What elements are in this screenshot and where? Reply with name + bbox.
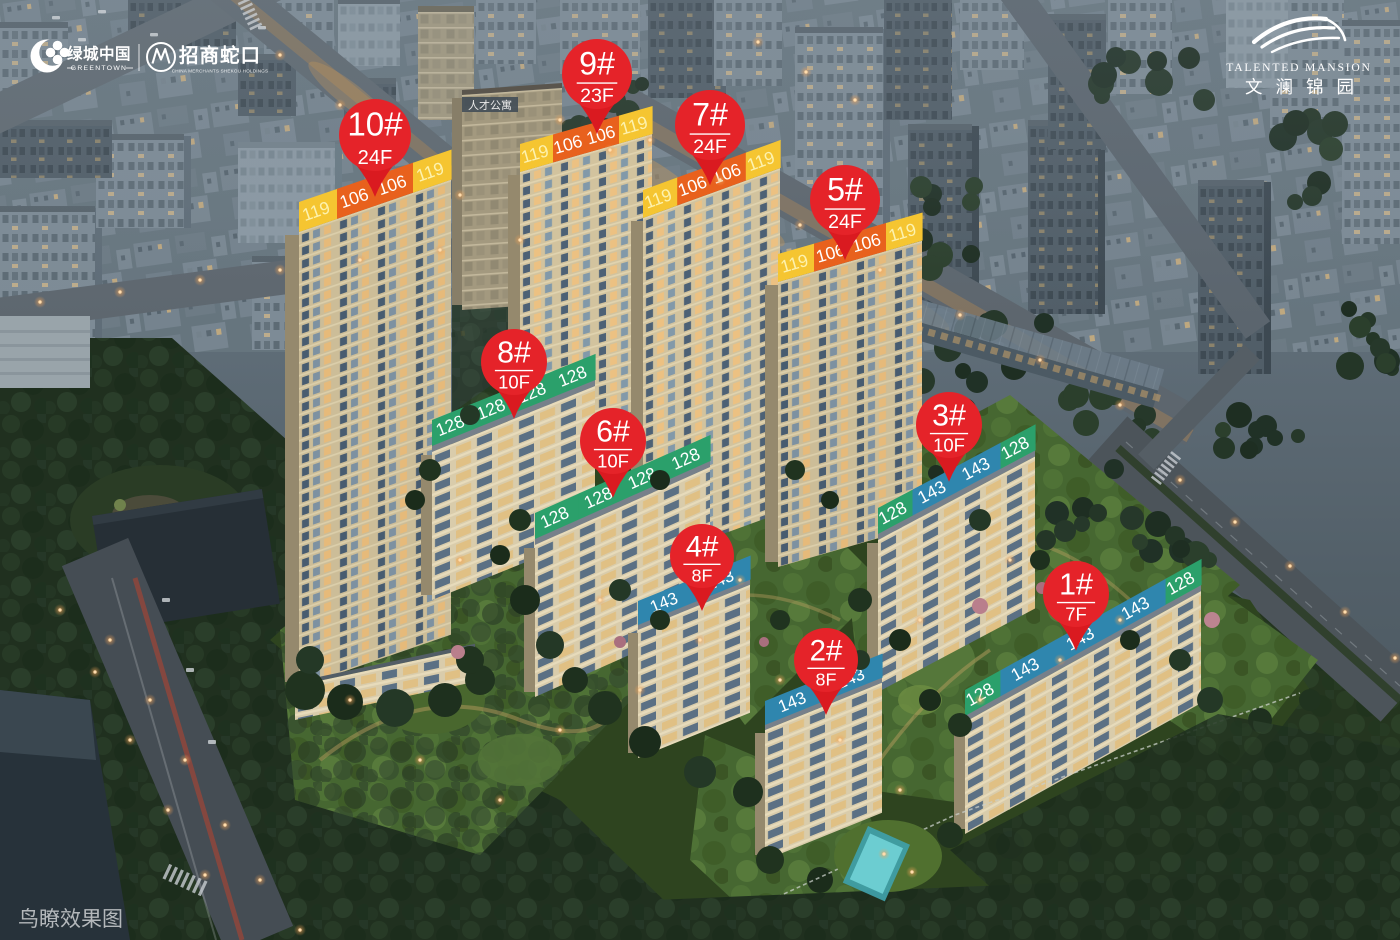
svg-text:4#: 4# xyxy=(686,531,719,564)
svg-text:10F: 10F xyxy=(498,371,530,392)
svg-text:24F: 24F xyxy=(693,136,727,158)
svg-text:24F: 24F xyxy=(828,211,862,233)
svg-text:8#: 8# xyxy=(497,337,531,370)
svg-text:2#: 2# xyxy=(810,635,843,668)
svg-text:8F: 8F xyxy=(816,670,837,690)
svg-text:23F: 23F xyxy=(580,85,614,107)
svg-text:鸟瞭效果图: 鸟瞭效果图 xyxy=(18,908,123,931)
svg-text:10#: 10# xyxy=(347,107,403,144)
svg-text:GREENTOWN: GREENTOWN xyxy=(71,65,128,72)
svg-text:9#: 9# xyxy=(579,46,615,82)
svg-text:3#: 3# xyxy=(932,400,966,433)
svg-text:10F: 10F xyxy=(933,434,965,455)
svg-text:CHINA MERCHANTS SHEKOU HOLDING: CHINA MERCHANTS SHEKOU HOLDINGS xyxy=(172,69,269,74)
svg-text:6#: 6# xyxy=(596,416,630,449)
svg-text:绿城中国: 绿城中国 xyxy=(67,44,131,63)
svg-text:10F: 10F xyxy=(597,450,629,471)
svg-text:7F: 7F xyxy=(1065,603,1087,624)
svg-text:招商蛇口: 招商蛇口 xyxy=(179,44,261,67)
svg-text:人才公寓: 人才公寓 xyxy=(468,98,512,112)
svg-text:TALENTED MANSION: TALENTED MANSION xyxy=(1226,61,1371,74)
svg-text:7#: 7# xyxy=(692,97,728,133)
svg-text:5#: 5# xyxy=(827,172,863,208)
svg-text:1#: 1# xyxy=(1059,569,1093,602)
svg-text:8F: 8F xyxy=(692,566,713,586)
svg-text:文澜锦园: 文澜锦园 xyxy=(1245,77,1367,97)
svg-text:24F: 24F xyxy=(358,147,393,169)
